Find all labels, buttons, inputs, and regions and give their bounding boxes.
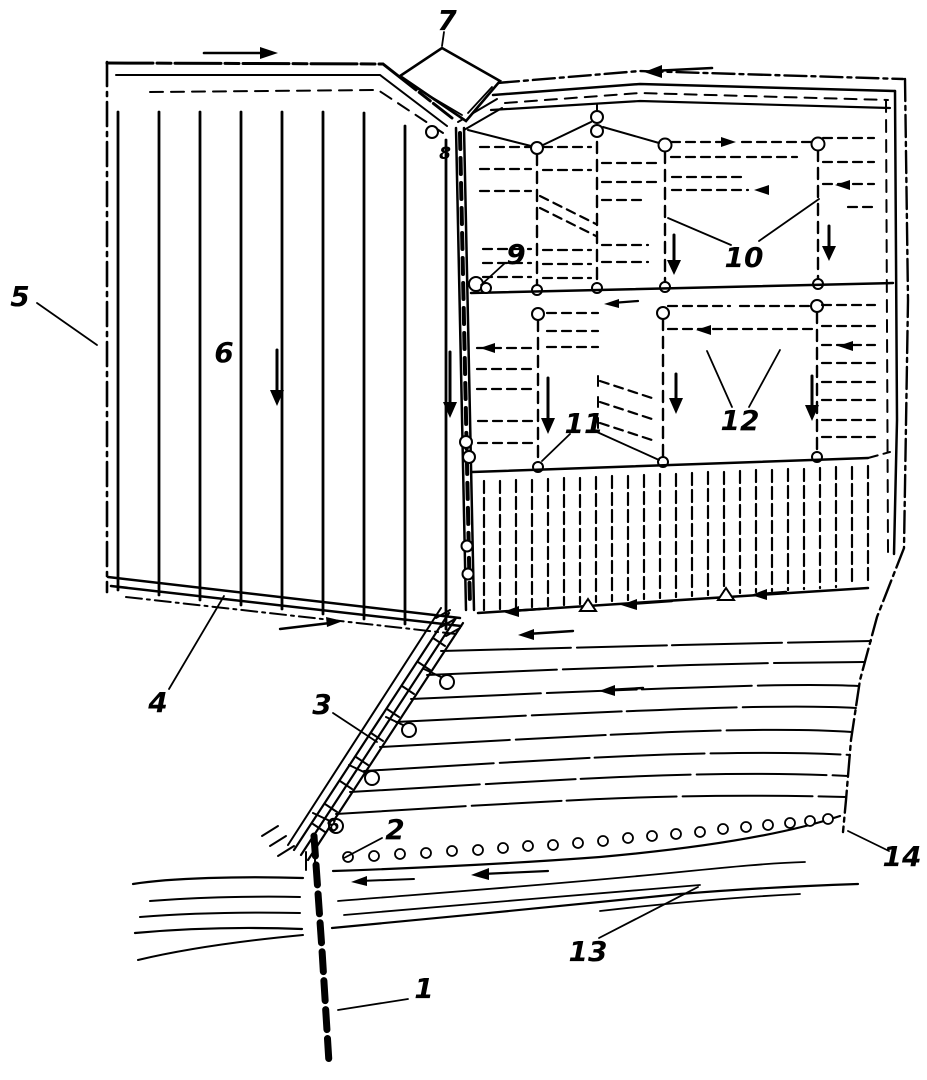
outlet-circle [463, 451, 475, 463]
field6-bottom-canal [108, 577, 461, 634]
outlet-circle [463, 569, 474, 580]
figure-label-5: 5 [10, 280, 29, 313]
outlet-circle [462, 541, 473, 552]
figure-label-6: 6 [214, 336, 233, 369]
label-9-leader [481, 263, 505, 285]
label-12-leaders [707, 350, 780, 407]
furrow-comb-block [478, 466, 868, 640]
irrigation-scheme-figure: 1 2 3 4 5 6 7 8 8 9 10 11 12 13 14 [0, 0, 927, 1080]
outlet-circle [426, 126, 438, 138]
label-4-leader [169, 596, 224, 689]
sprinkler-tier-2 [472, 283, 890, 472]
figure-label-12: 12 [721, 404, 760, 437]
label-5-leader [37, 303, 97, 345]
outlet-circle [402, 723, 416, 737]
figure-label-3: 3 [312, 688, 331, 721]
outlet-circle [460, 436, 472, 448]
pool-diamond [400, 48, 500, 121]
middle-canal [426, 126, 483, 636]
figure-label-8: 8 [439, 144, 451, 164]
figure-label-1: 1 [414, 972, 433, 1005]
dam [306, 836, 329, 1063]
sprinkler-tier-1 [468, 104, 893, 308]
flow-arrow-left-icon [351, 868, 548, 886]
tier2-bottom-line [472, 458, 868, 472]
outlet-circle [440, 675, 454, 689]
diagram-canvas: 1 2 3 4 5 6 7 8 8 9 10 11 12 13 14 [0, 0, 927, 1080]
bank-circles-row [343, 814, 833, 862]
figure-label-14: 14 [883, 840, 922, 873]
figure-label-2: 2 [385, 813, 404, 846]
label-10-leaders [668, 199, 819, 245]
figure-label-11: 11 [565, 407, 604, 440]
outlet-circle [365, 771, 379, 785]
figure-label-4: 4 [147, 686, 167, 719]
figure-label-9: 9 [506, 238, 525, 271]
figure-label-10: 10 [725, 241, 764, 274]
right-edge-canal [886, 91, 897, 554]
figure-labels: 1 2 3 4 5 6 7 8 8 9 10 11 12 13 14 [10, 4, 921, 1010]
flow-arrow-right-icon [204, 47, 278, 59]
label-1-leader [338, 999, 408, 1010]
top-right-canal [458, 65, 895, 130]
strip-field-verticals [118, 112, 457, 629]
diagonal-canal [262, 608, 463, 860]
river [133, 816, 858, 960]
figure-label-13: 13 [569, 935, 608, 968]
figure-label-7: 7 [437, 4, 457, 37]
label-13-leader [599, 887, 698, 938]
triangle-marker-icon [718, 588, 734, 600]
